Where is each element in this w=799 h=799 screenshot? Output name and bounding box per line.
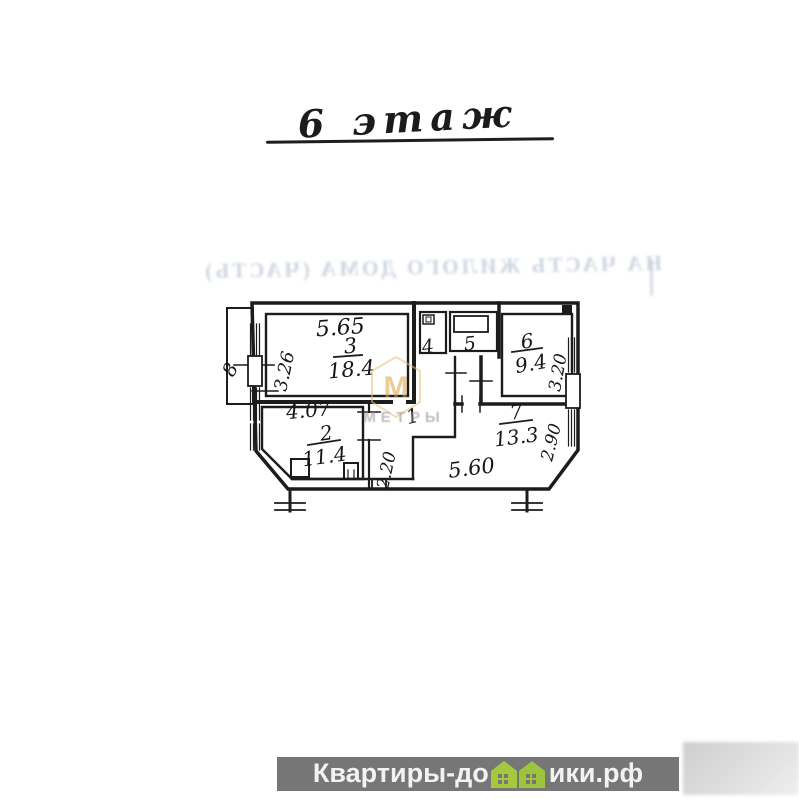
- break-marks: [275, 503, 542, 510]
- column-marker: [562, 305, 572, 314]
- room7-area: 13.3: [493, 422, 540, 451]
- stub-walls: [290, 489, 527, 511]
- room7-door-jambs: [462, 396, 480, 412]
- room5-number: 5: [463, 332, 477, 355]
- room8-number: 8: [218, 359, 243, 380]
- dim-right-room7: 2.90: [537, 421, 566, 464]
- room3-number: 3: [343, 333, 359, 358]
- dim-bottom-room7: 5.60: [447, 453, 496, 483]
- room2-area: 11.4: [301, 441, 348, 471]
- room2-number: 2: [317, 420, 334, 446]
- toilet-icon-inner: [426, 317, 431, 322]
- dim-top-room3: 5.65: [315, 314, 366, 342]
- brand-text-suffix: ики.рф: [549, 758, 643, 789]
- wall-pier-left: [248, 356, 262, 386]
- wall-pier-right: [566, 374, 580, 408]
- watermark-letter: М: [384, 371, 409, 404]
- dim-top-room2: 4.07: [284, 396, 332, 424]
- dim-corridor: 2.20: [373, 450, 401, 492]
- scan-gray-block: [683, 742, 799, 795]
- brand-text-prefix: Квартиры-до: [313, 758, 489, 789]
- bathtub-icon: [454, 316, 488, 332]
- stand-icon-legs: [348, 470, 354, 479]
- room6-area: 9.4: [513, 349, 548, 378]
- toilet-icon: [423, 315, 434, 324]
- brand-bar: Квартиры-до ики.рф: [277, 757, 679, 791]
- watermark-label: МЕТРЫ: [352, 409, 456, 426]
- houses-icon: [489, 759, 549, 789]
- dim-left-room3: 3.26: [270, 349, 299, 393]
